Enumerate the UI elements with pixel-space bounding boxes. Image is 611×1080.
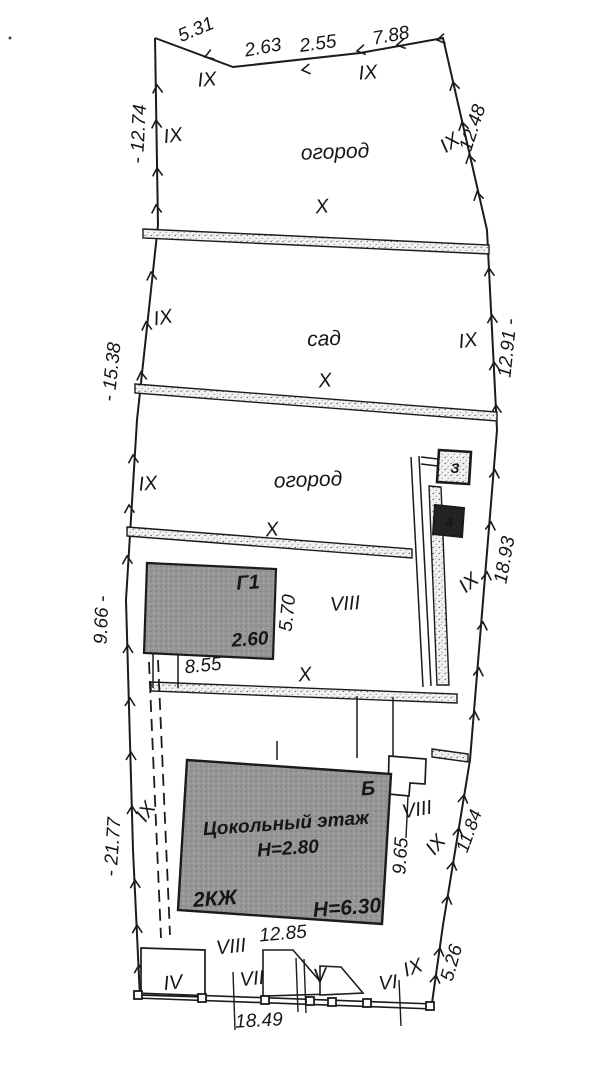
scan-artifact-dot [9, 37, 12, 40]
zone-x: X [316, 369, 333, 392]
fence-upper [143, 229, 489, 254]
zone-ix: IX [400, 954, 426, 981]
dim-top-1: 5.31 [175, 13, 217, 47]
dim-left-4: - 21.77 [100, 815, 125, 877]
zone-ix: IX [162, 124, 184, 149]
dim-right-5: 5.26 [437, 942, 467, 984]
dim-right-2: 12.91 - [494, 317, 521, 378]
area-garden-lower: огород [273, 467, 342, 492]
dim-left-1: - 12.74 [127, 104, 151, 164]
fence-middle [135, 384, 497, 421]
zone-ix: IX [421, 830, 450, 859]
building-g1-height: 2.60 [230, 628, 270, 652]
dim-left-3: 9.66 - [91, 595, 114, 644]
building-shed3-letter: З [451, 460, 460, 476]
dim-top-3: 2.55 [297, 31, 338, 57]
zone-vi: VI [377, 971, 399, 995]
zone-x: X [296, 663, 313, 686]
zone-viii: VIII [400, 796, 434, 823]
zone-ix: IX [152, 305, 175, 330]
survey-plan-page: 5.31 2.63 2.55 7.88 - 12.74 - 15.38 9.66… [0, 0, 611, 1080]
zone-ix: IX [138, 472, 159, 496]
building-shed4-letter: 4 [444, 514, 453, 530]
zone-viii: VIII [215, 934, 248, 959]
building-main-letter: Б [360, 778, 376, 801]
fence-right-stub [432, 749, 468, 762]
dim-bottom: 18.49 [235, 1009, 284, 1032]
area-garden-upper: огород [300, 139, 369, 164]
zone-x: X [263, 518, 280, 541]
zone-ix: IX [358, 61, 379, 85]
dim-g1-width: 8.55 [184, 654, 223, 679]
wall-line [421, 457, 438, 466]
dim-left-2: - 15.38 [98, 341, 125, 402]
zone-ix: IX [455, 568, 484, 597]
dim-right-3: 18.93 [491, 534, 520, 585]
zone-ix: IX [197, 68, 218, 92]
area-orchard: сад [307, 327, 342, 351]
dim-house-depth: 9.65 [389, 836, 413, 875]
dim-house-width: 12.85 [258, 921, 308, 946]
building-main-basement-height: Н=2.80 [256, 836, 320, 861]
zone-viii: VIII [329, 592, 361, 616]
building-main-storeys: 2КЖ [191, 886, 239, 912]
building-main-height: Н=6.30 [312, 894, 382, 922]
porch-outline [388, 756, 426, 796]
site-plan-drawing: 5.31 2.63 2.55 7.88 - 12.74 - 15.38 9.66… [0, 0, 611, 1080]
building-g1-letter: Г1 [236, 571, 261, 595]
zone-vii: VII [239, 967, 266, 991]
dim-top-2: 2.63 [242, 34, 283, 61]
zone-x: X [313, 195, 330, 218]
zone-ix: IX [457, 329, 479, 354]
dim-g1-depth: 5.70 [276, 593, 301, 632]
